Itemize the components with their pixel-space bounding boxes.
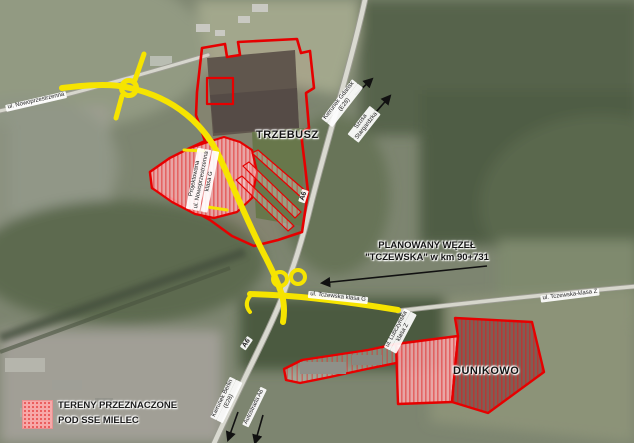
dunikowo-place-label: DUNIKOWO	[453, 365, 519, 377]
planning-map: TRZEBUSZ DUNIKOWO PLANOWANY WĘZEŁ "TCZEW…	[0, 0, 634, 443]
legend-swatch	[22, 400, 53, 429]
planned-junction-note: PLANOWANY WĘZEŁ "TCZEWSKA" w km 90+731	[352, 240, 502, 264]
planned-junction-line2: "TCZEWSKA" w km 90+731	[352, 252, 502, 264]
satellite-map-graphic	[0, 0, 634, 443]
planned-junction-line1: PLANOWANY WĘZEŁ	[352, 240, 502, 252]
legend: TERENY PRZEZNACZONE POD SSE MIELEC	[58, 398, 177, 428]
legend-line2: POD SSE MIELEC	[58, 413, 177, 428]
trzebusz-place-label: TRZEBUSZ	[256, 129, 319, 141]
legend-line1: TERENY PRZEZNACZONE	[58, 398, 177, 413]
